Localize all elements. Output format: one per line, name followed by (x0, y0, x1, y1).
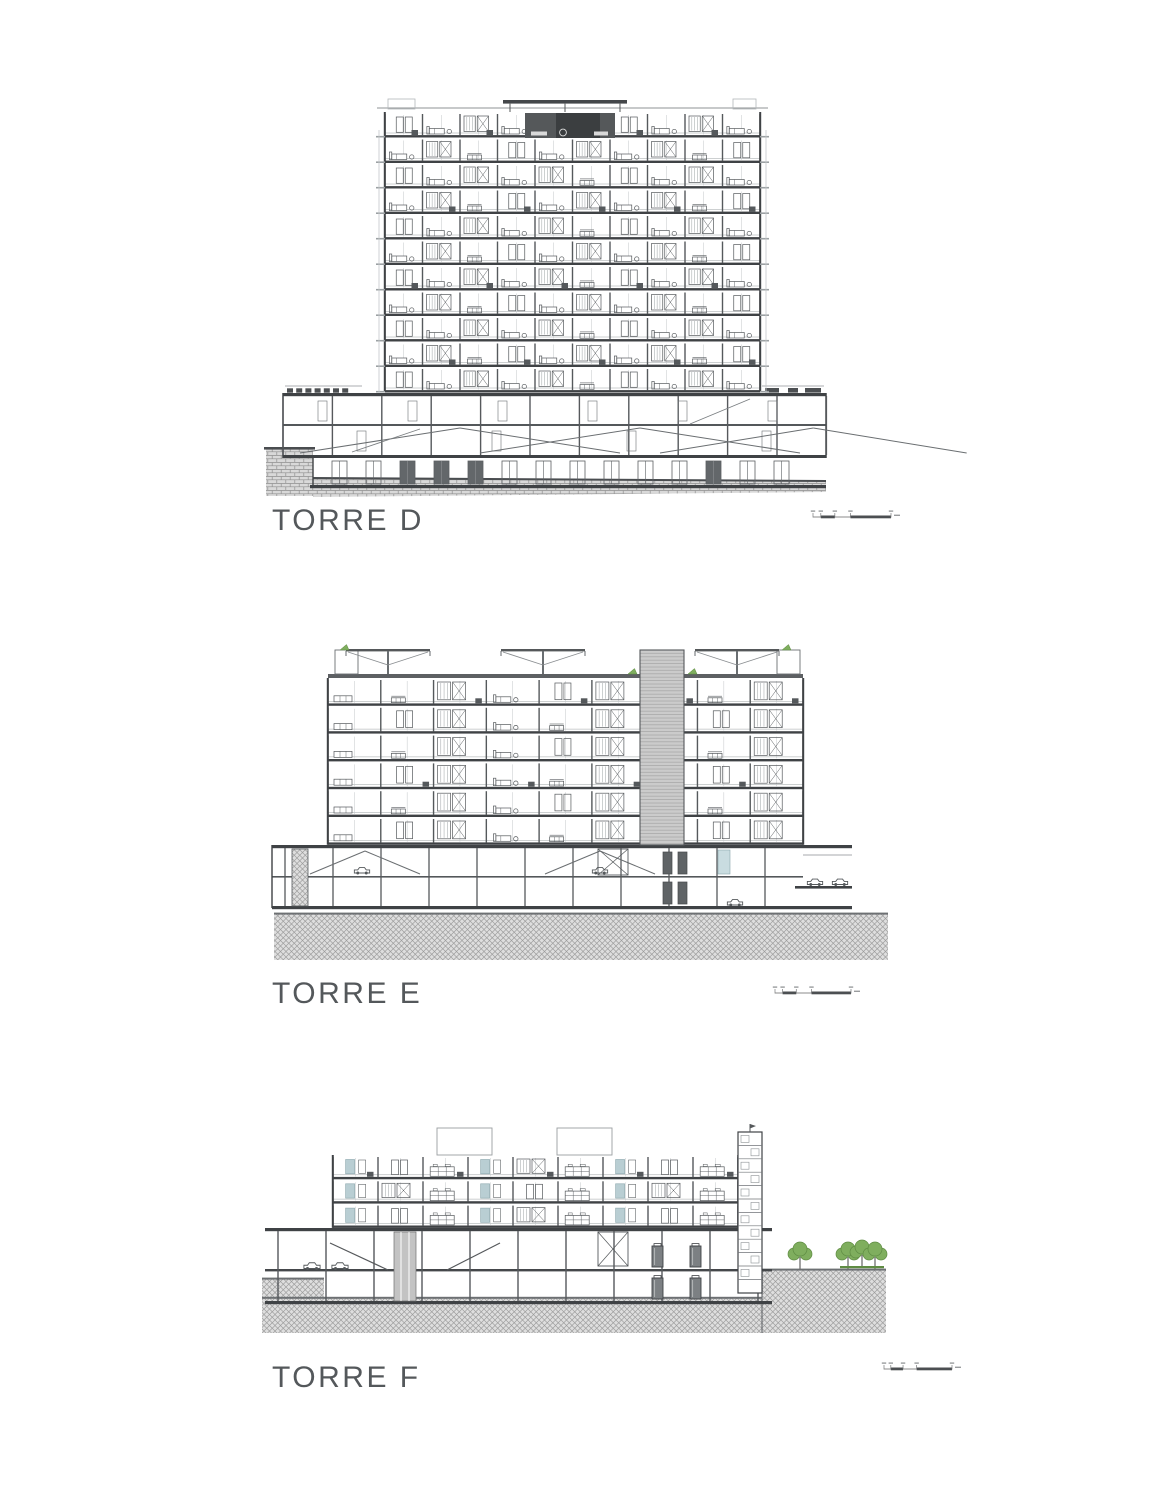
torre-d-tower (376, 112, 769, 393)
drawing-sheet: TORRE D TORRE E TORRE F (0, 0, 1159, 1500)
torre-e-street-right (727, 855, 852, 906)
torre-e-scale-bar (773, 986, 860, 994)
shade-structure-icon (695, 649, 779, 674)
torre-e-building (327, 678, 804, 845)
torre-e-drawing (272, 645, 888, 995)
car-icon (727, 900, 742, 907)
car-icon (304, 1263, 320, 1270)
roof-plant-icon (782, 645, 791, 651)
torre-d-drawing (264, 99, 967, 518)
car-icon (807, 879, 822, 886)
car-icon (832, 879, 847, 886)
roof-plant-icon (688, 669, 697, 675)
torre-f-podium (265, 1228, 772, 1304)
torre-f-ground-hatch (262, 1240, 887, 1333)
torre-f-stair-tower (738, 1124, 762, 1293)
torre-f-roof (437, 1128, 612, 1155)
torre-d-podium (282, 386, 966, 458)
car-icon (354, 868, 369, 875)
shade-structure-icon (501, 649, 585, 674)
roof-plant-icon (628, 669, 637, 675)
car-icon (332, 1263, 348, 1270)
torre-d-scale-bar (811, 510, 900, 518)
torre-f-label: TORRE F (272, 1363, 421, 1393)
torre-e-roof (328, 645, 803, 679)
tree-icon (788, 1242, 812, 1270)
sections-canvas (0, 0, 1159, 1500)
torre-e-ground-hatch (274, 913, 888, 960)
shade-structure-icon (346, 649, 430, 674)
torre-f-scale-bar (882, 1362, 961, 1370)
torre-d-ground-hatch (264, 447, 826, 497)
torre-f-drawing (262, 1124, 961, 1370)
torre-f-building (332, 1155, 739, 1228)
torre-e-podium (272, 845, 852, 909)
torre-d-label: TORRE D (272, 506, 424, 536)
torre-e-label: TORRE E (272, 979, 422, 1009)
roof-plant-icon (340, 645, 349, 651)
